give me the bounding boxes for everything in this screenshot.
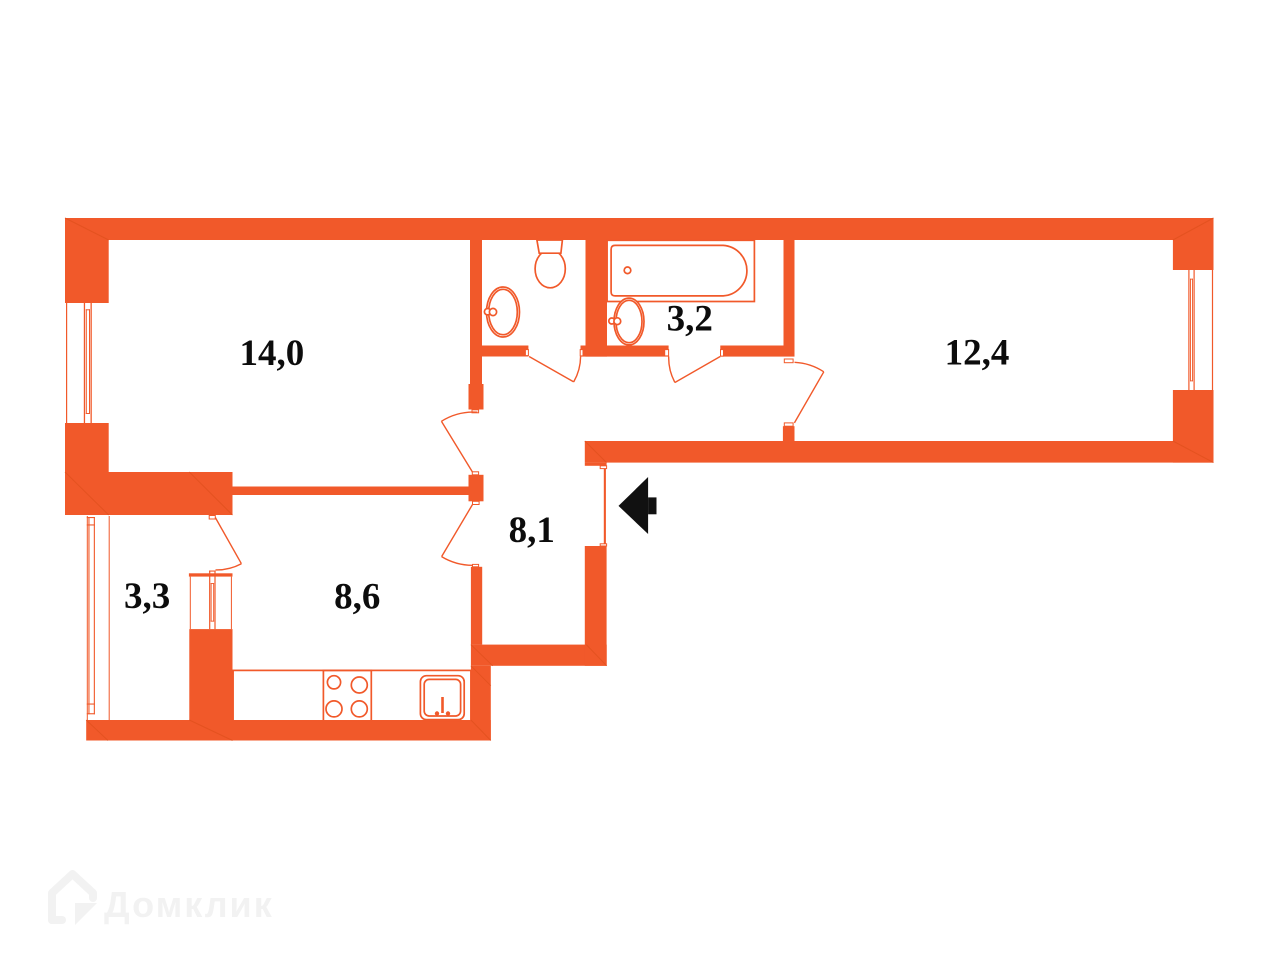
svg-text:8,6: 8,6 [334,576,380,617]
svg-text:14,0: 14,0 [240,333,305,374]
svg-text:8,1: 8,1 [509,510,555,551]
svg-text:3,2: 3,2 [667,299,713,340]
svg-text:Домклик: Домклик [104,884,274,925]
svg-text:12,4: 12,4 [945,333,1010,374]
svg-text:3,3: 3,3 [124,576,170,617]
